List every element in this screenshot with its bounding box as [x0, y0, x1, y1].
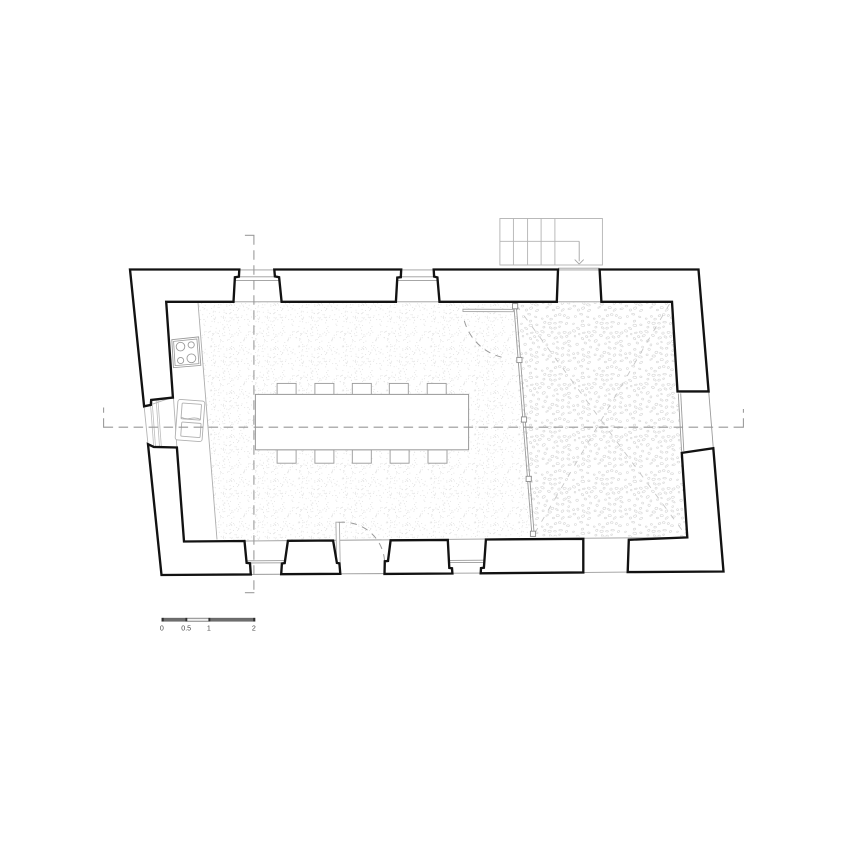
svg-text:0: 0	[160, 625, 164, 633]
svg-text:0.5: 0.5	[181, 625, 191, 633]
svg-text:1: 1	[207, 625, 211, 633]
svg-text:2: 2	[252, 625, 256, 633]
